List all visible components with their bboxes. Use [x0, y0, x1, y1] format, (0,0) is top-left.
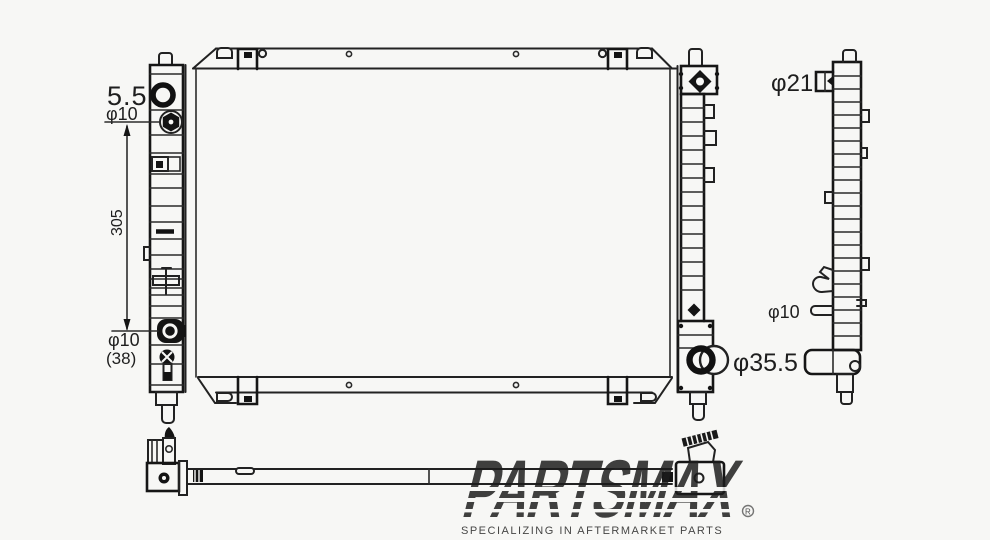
svg-text:φ10: φ10 — [768, 302, 800, 322]
svg-text:R: R — [745, 508, 751, 517]
svg-text:φ10: φ10 — [108, 330, 140, 350]
svg-text:305: 305 — [109, 209, 126, 236]
svg-text:φ35.5: φ35.5 — [733, 349, 798, 377]
svg-text:φ10: φ10 — [106, 104, 138, 124]
svg-text:(38): (38) — [106, 349, 136, 368]
svg-text:SPECIALIZING IN AFTERMARKET PA: SPECIALIZING IN AFTERMARKET PARTS — [461, 525, 723, 537]
svg-text:φ21: φ21 — [771, 70, 813, 97]
